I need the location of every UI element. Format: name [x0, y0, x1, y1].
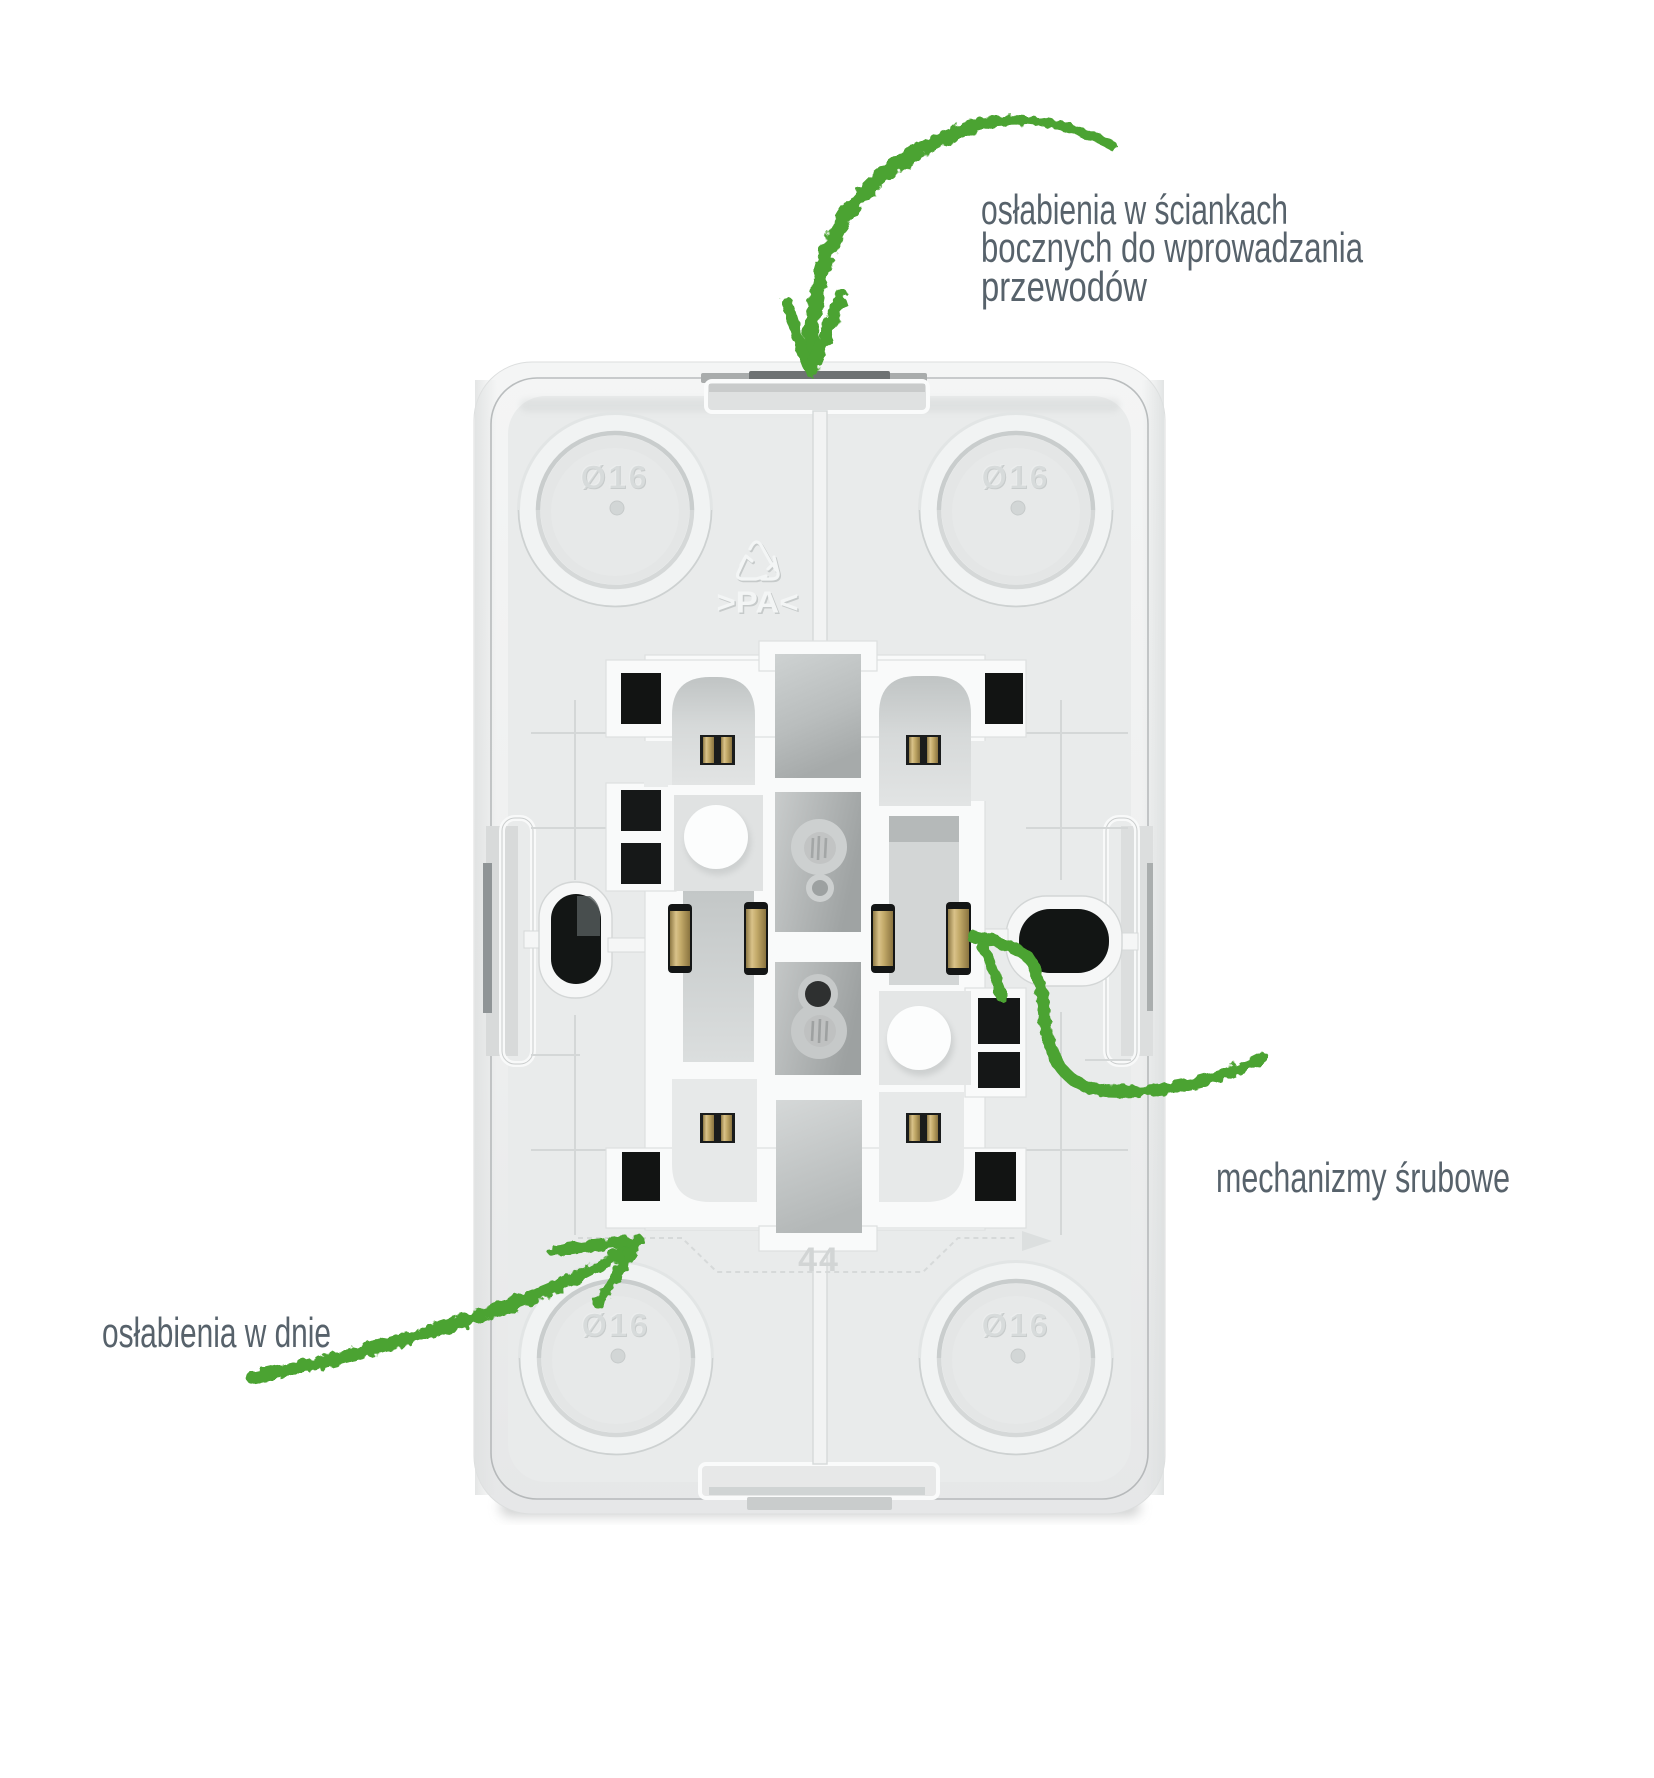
svg-text:mechanizmy śrubowe: mechanizmy śrubowe	[1216, 1154, 1510, 1201]
svg-text:Ø16: Ø16	[981, 458, 1049, 495]
svg-text:Ø16: Ø16	[580, 458, 648, 495]
svg-text:>PA<: >PA<	[717, 585, 799, 620]
svg-text:osłabienia w dnie: osłabienia w dnie	[102, 1309, 331, 1356]
svg-text:przewodów: przewodów	[981, 263, 1148, 310]
svg-text:Ø16: Ø16	[981, 1306, 1049, 1343]
svg-text:44: 44	[798, 1241, 840, 1279]
svg-text:Ø16: Ø16	[581, 1306, 649, 1343]
